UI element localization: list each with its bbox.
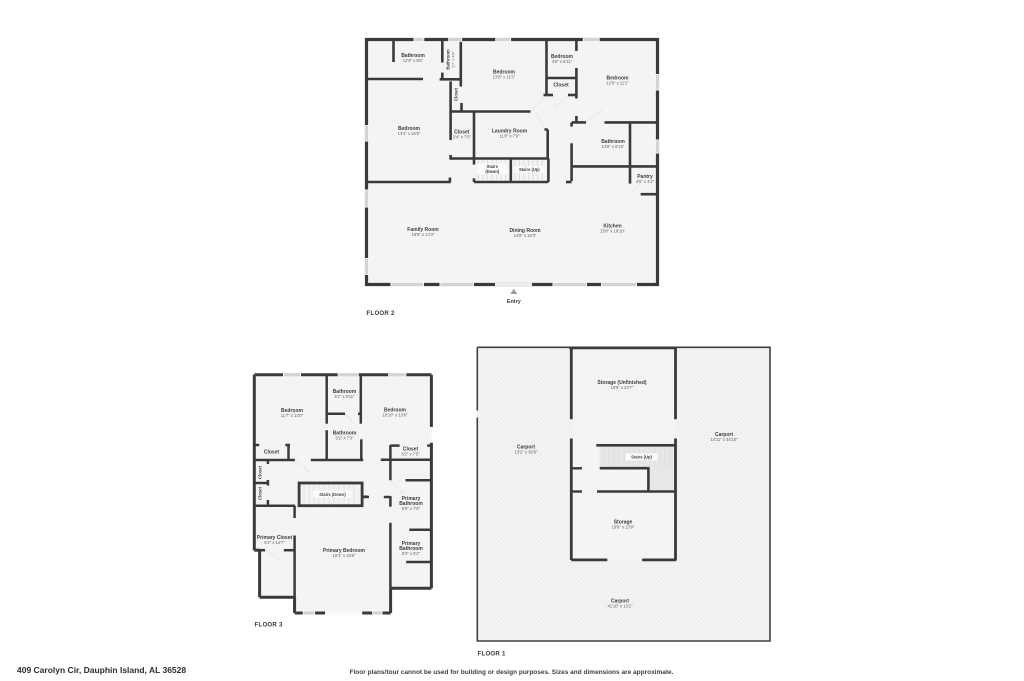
svg-text:14'8" x 16'3": 14'8" x 16'3" bbox=[514, 233, 537, 238]
svg-text:10'10" x 13'6": 10'10" x 13'6" bbox=[382, 413, 408, 418]
svg-text:FLOOR 2: FLOOR 2 bbox=[367, 310, 396, 317]
svg-text:Closet: Closet bbox=[454, 87, 459, 101]
svg-text:12'9" x 6'6": 12'9" x 6'6" bbox=[403, 58, 424, 63]
svg-text:Stairs (Up): Stairs (Up) bbox=[519, 167, 540, 172]
svg-text:13'2" x 36'8": 13'2" x 36'8" bbox=[515, 450, 538, 455]
svg-text:Bathroom: Bathroom bbox=[446, 49, 451, 69]
svg-text:(Down): (Down) bbox=[485, 169, 500, 174]
svg-text:FLOOR 1: FLOOR 1 bbox=[478, 651, 507, 658]
svg-text:Closet: Closet bbox=[258, 486, 263, 500]
svg-text:12'8" x 6'10": 12'8" x 6'10" bbox=[602, 144, 625, 149]
svg-text:11'7" x 13'0": 11'7" x 13'0" bbox=[281, 413, 304, 418]
svg-text:19'8" x 13'9": 19'8" x 13'9" bbox=[612, 525, 635, 530]
svg-text:FLOOR 3: FLOOR 3 bbox=[255, 622, 284, 629]
svg-text:4'5" x 4'2": 4'5" x 4'2" bbox=[636, 179, 655, 184]
svg-text:409 Carolyn Cir, Dauphin Islan: 409 Carolyn Cir, Dauphin Island, AL 3652… bbox=[17, 665, 186, 675]
svg-text:19'8" x 14'3": 19'8" x 14'3" bbox=[412, 232, 435, 237]
svg-text:Stairs (Up): Stairs (Up) bbox=[631, 455, 652, 460]
svg-text:15'3" x 18'8": 15'3" x 18'8" bbox=[333, 553, 356, 558]
svg-text:5'2" x 7'3": 5'2" x 7'3" bbox=[335, 436, 354, 441]
svg-text:41'10" x 13'1": 41'10" x 13'1" bbox=[607, 604, 633, 609]
svg-text:Stairs (Down): Stairs (Down) bbox=[319, 492, 346, 497]
svg-text:Closet: Closet bbox=[264, 450, 280, 456]
svg-text:6'2" x 14'7": 6'2" x 14'7" bbox=[264, 540, 285, 545]
svg-text:12'8" x 11'1": 12'8" x 11'1" bbox=[606, 81, 629, 86]
svg-text:11'8" x 7'9": 11'8" x 7'9" bbox=[499, 134, 520, 139]
svg-text:6'2" x 7'5": 6'2" x 7'5" bbox=[401, 451, 420, 456]
svg-text:Entry: Entry bbox=[507, 299, 521, 305]
svg-text:19'8" x 23'7": 19'8" x 23'7" bbox=[611, 385, 634, 390]
svg-text:Closet: Closet bbox=[258, 465, 263, 479]
svg-text:3'4" x 7'5": 3'4" x 7'5" bbox=[453, 135, 472, 140]
svg-text:2'7" x 4'9": 2'7" x 4'9" bbox=[451, 51, 455, 68]
svg-text:14'11" x 34'10": 14'11" x 34'10" bbox=[710, 437, 738, 442]
svg-text:6'3" x 9'2": 6'3" x 9'2" bbox=[402, 551, 421, 556]
svg-text:4'6" x 5'11": 4'6" x 5'11" bbox=[552, 59, 573, 64]
svg-text:Closet: Closet bbox=[553, 83, 569, 89]
svg-text:13'8" x 18'10": 13'8" x 18'10" bbox=[600, 229, 626, 234]
svg-text:Floor plans/tour cannot be use: Floor plans/tour cannot be used for buil… bbox=[350, 669, 674, 676]
svg-text:6'5" x 7'8": 6'5" x 7'8" bbox=[402, 506, 421, 511]
svg-text:5'2" x 5'11": 5'2" x 5'11" bbox=[334, 394, 355, 399]
svg-text:13'8" x 11'3": 13'8" x 11'3" bbox=[493, 75, 516, 80]
svg-text:13'4" x 16'5": 13'4" x 16'5" bbox=[398, 131, 421, 136]
